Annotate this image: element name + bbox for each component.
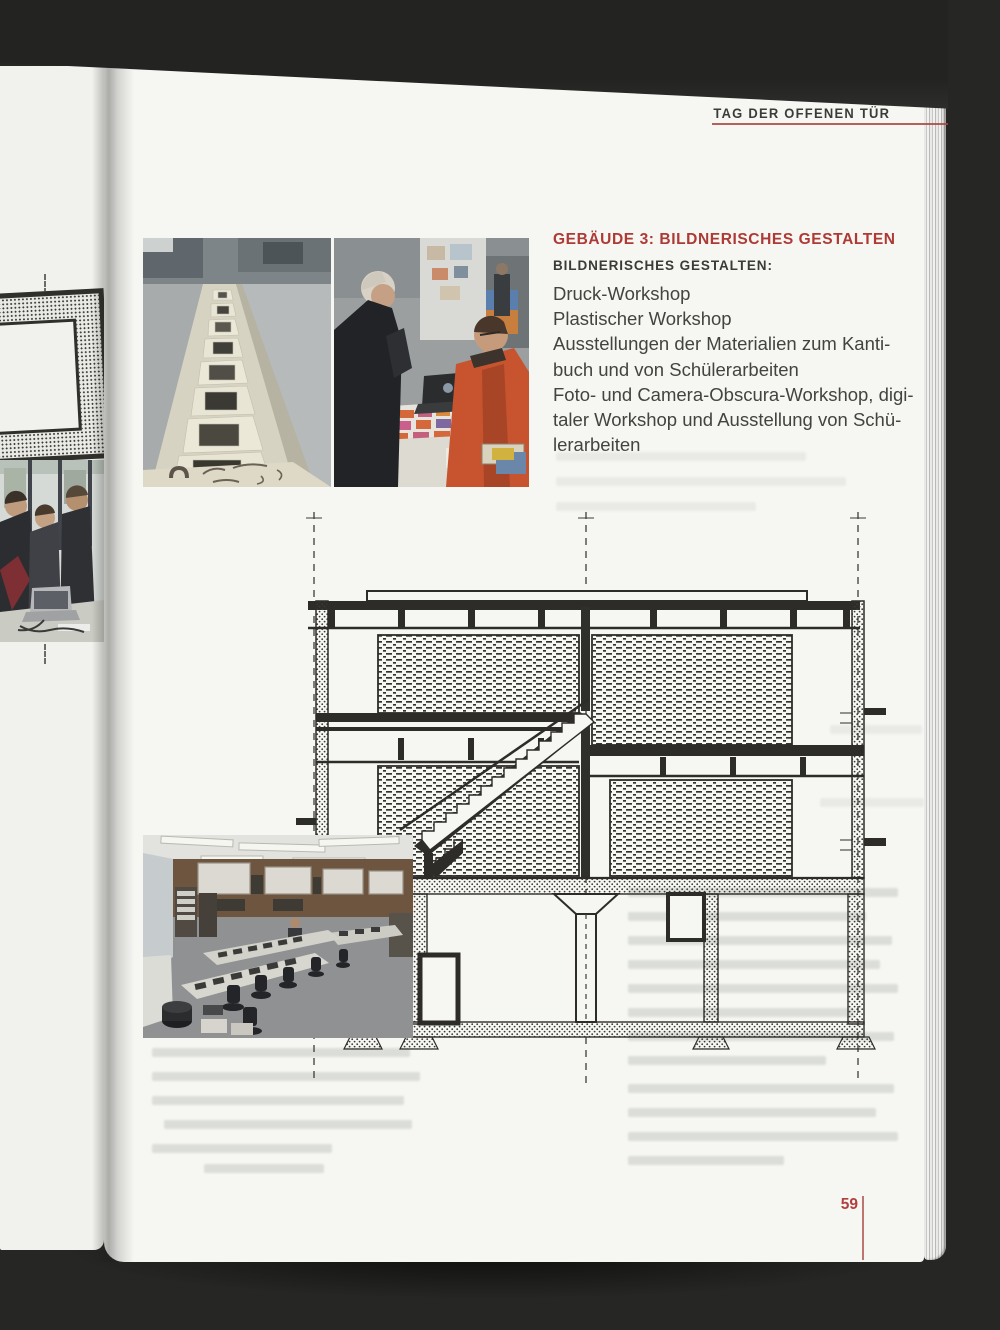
photo-prints-table — [143, 238, 331, 487]
book-fore-edge — [924, 74, 946, 1260]
plan-fragment-inner — [0, 319, 82, 436]
article-body-line: taler Workshop und Ausstellung von Schü- — [553, 407, 923, 432]
running-header: TAG DER OFFENEN TÜR — [713, 106, 890, 121]
article-body-line: Druck-Workshop — [553, 281, 923, 306]
scanned-book-spread: TAG DER OFFENEN TÜR GEBÄUDE 3: BILDNERIS… — [0, 0, 1000, 1330]
header-rule-red — [712, 123, 948, 125]
left-page-photo-laptop — [0, 460, 104, 642]
page-number: 59 — [794, 1196, 858, 1214]
left-page-plan-fragment — [0, 288, 104, 466]
article-body-line: Ausstellungen der Materialien zum Kanti- — [553, 331, 923, 356]
axis-dash-fragment — [44, 644, 46, 664]
article-body-line: Foto- und Camera-Obscura-Workshop, digi- — [553, 382, 923, 407]
article-text-block: GEBÄUDE 3: BILDNERISCHES GESTALTEN BILDN… — [553, 231, 923, 457]
article-body: Druck-WorkshopPlastischer WorkshopAusste… — [553, 281, 923, 457]
main-page: TAG DER OFFENEN TÜR GEBÄUDE 3: BILDNERIS… — [104, 62, 924, 1262]
photo-classroom — [143, 835, 413, 1038]
photo-visitors — [334, 238, 529, 487]
article-heading: GEBÄUDE 3: BILDNERISCHES GESTALTEN — [553, 231, 912, 249]
folio-rule-red — [862, 1196, 864, 1260]
article-subheading: BILDNERISCHES GESTALTEN: — [553, 258, 923, 273]
left-page-edge — [0, 66, 104, 1250]
article-body-line: buch und von Schülerarbeiten — [553, 357, 923, 382]
article-body-line: Plastischer Workshop — [553, 306, 923, 331]
